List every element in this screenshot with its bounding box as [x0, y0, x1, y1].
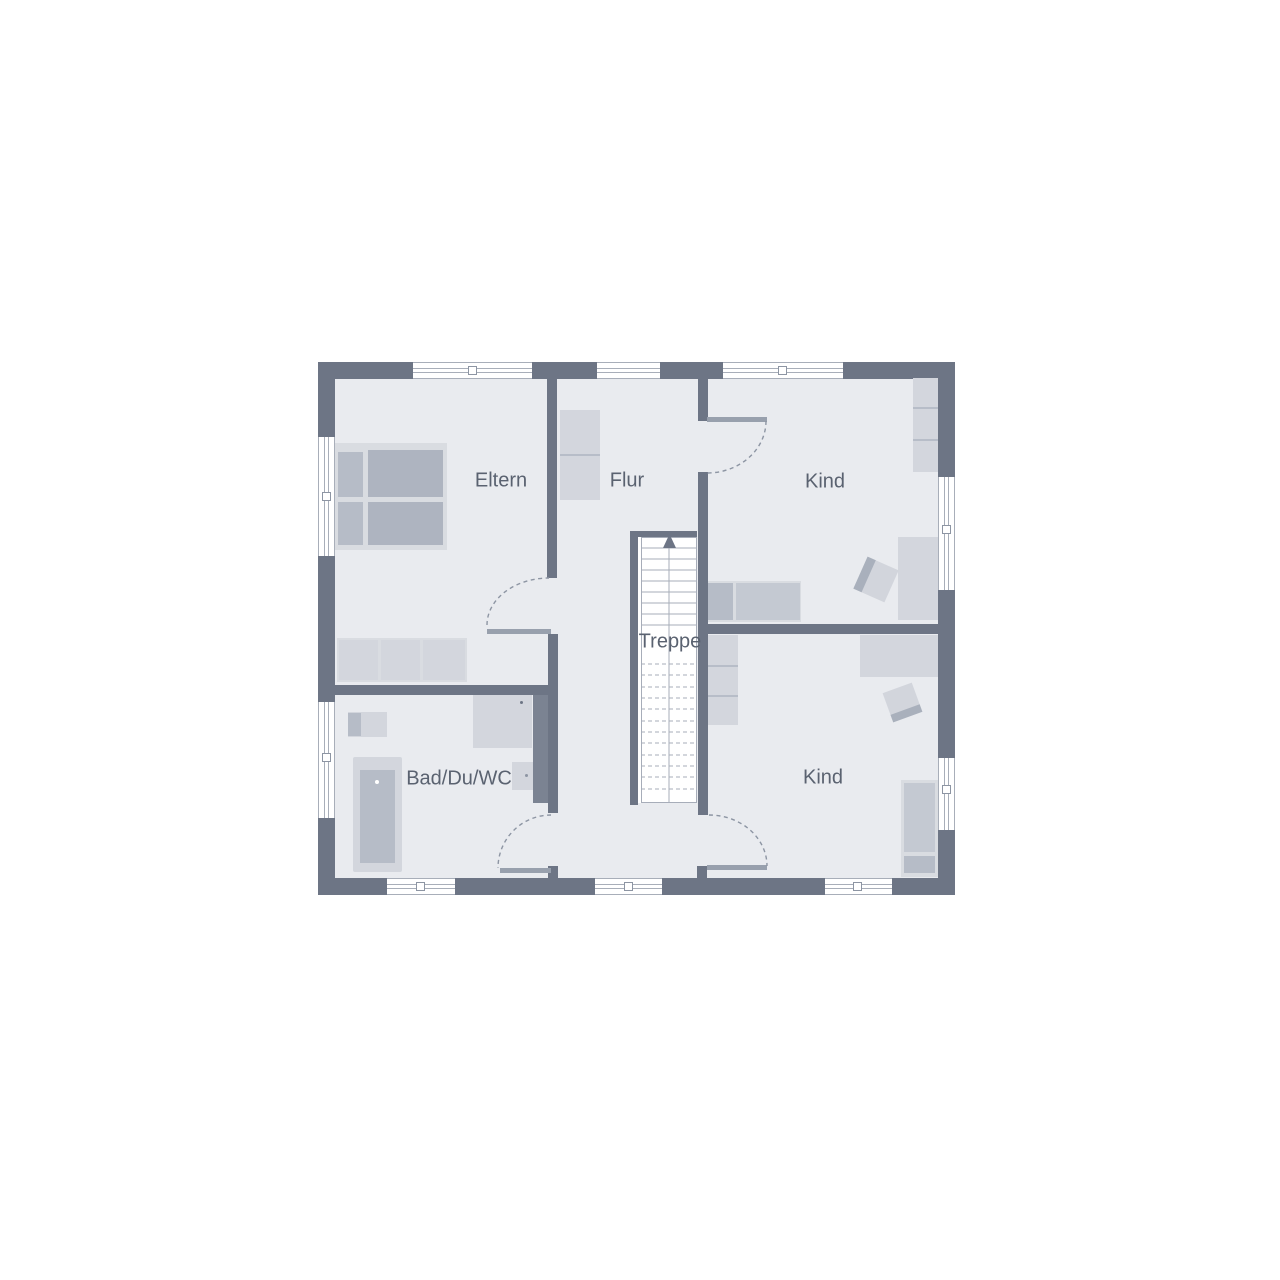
floorplan-canvas: Eltern Flur Kind Treppe Bad/Du/WC Kind — [0, 0, 1280, 1280]
door-swing-arc — [707, 421, 766, 473]
door-swing-arc — [487, 578, 549, 625]
room-label-kind-top: Kind — [805, 471, 845, 494]
room-label-treppe: Treppe — [639, 631, 702, 654]
plan-overlay — [318, 362, 955, 895]
door-swing-arc — [498, 815, 551, 868]
room-label-flur: Flur — [610, 470, 644, 493]
room-label-eltern: Eltern — [475, 470, 527, 493]
floor-plan: Eltern Flur Kind Treppe Bad/Du/WC Kind — [318, 362, 955, 895]
door-swing-arc — [709, 815, 767, 866]
room-label-kind-bottom: Kind — [803, 767, 843, 790]
room-label-bad: Bad/Du/WC — [406, 768, 512, 791]
